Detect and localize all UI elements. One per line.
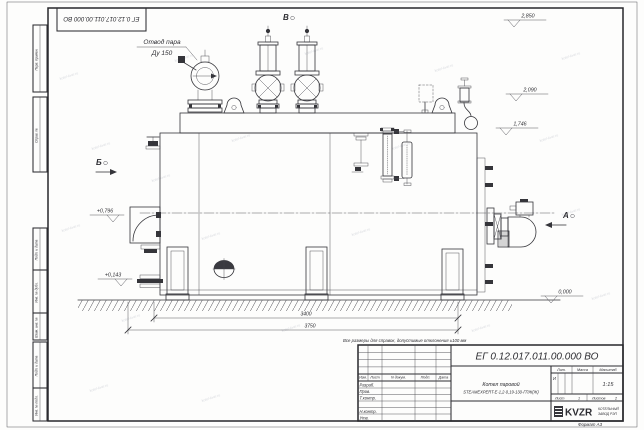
watermark-layer: kotel-kvzr.ru kotel-kvzr.ru kotel-kvzr.r… xyxy=(59,46,611,403)
org-name-line1: КОТЕЛЬНЫЙ xyxy=(598,407,619,411)
reference-note: Все размеры для справок, допустимые откл… xyxy=(343,338,466,343)
elevation-value: 2,090 xyxy=(522,88,536,94)
elevation-value: 1,746 xyxy=(513,122,526,128)
sheet-frame xyxy=(7,2,637,427)
watermark-text: kotel-kvzr.ru xyxy=(121,313,141,323)
drum-front-valve xyxy=(352,133,368,172)
dimension-value: 3750 xyxy=(304,324,315,330)
elevation-value: +0,796 xyxy=(97,209,113,215)
drawing-canvas: kotel-kvzr.ru kotel-kvzr.ru kotel-kvzr.r… xyxy=(0,0,644,430)
format-label: Формат А3 xyxy=(578,422,603,427)
corner-stamp: ЕГ 0.12.017.011.00.000 ВО xyxy=(57,8,146,31)
title-block: Все размеры для справок, допустимые откл… xyxy=(343,338,623,427)
watermark-text: kotel-kvzr.ru xyxy=(89,383,109,393)
sheets-value: 2 xyxy=(614,396,617,400)
watermark-text: kotel-kvzr.ru xyxy=(201,393,221,403)
view-label-v: В xyxy=(283,13,289,22)
col-izm: Изм. xyxy=(359,376,367,380)
watermark-text: kotel-kvzr.ru xyxy=(561,51,581,61)
manhole xyxy=(213,259,235,280)
watermark-text: kotel-kvzr.ru xyxy=(471,323,491,333)
steam-outlet-label-line2: Ду 150 xyxy=(151,50,173,57)
margin-label-podp-data-1: Подп. и дата xyxy=(35,240,39,261)
view-arrow-b-left: Б xyxy=(96,158,117,175)
safety-valve-1 xyxy=(252,26,284,113)
support xyxy=(305,247,328,300)
row-prov: Пров. xyxy=(360,389,371,394)
col-data: Дата xyxy=(438,376,449,380)
watermark-text: kotel-kvzr.ru xyxy=(231,133,251,143)
front-box xyxy=(130,207,161,243)
view-arrow-b-top: В xyxy=(283,13,294,22)
watermark-text: kotel-kvzr.ru xyxy=(539,133,559,143)
elevation-value: +0,143 xyxy=(105,273,121,279)
lit-value: И xyxy=(553,376,556,381)
scale-label: Масштаб xyxy=(599,368,617,372)
level-gauge-glass xyxy=(402,130,412,186)
col-list: Лист xyxy=(369,376,380,380)
elevation-0000: 0,000 xyxy=(541,290,583,304)
saddle-supports xyxy=(166,247,464,300)
drawing-designation: ЕГ 0.12.017.011.00.000 ВО xyxy=(476,352,599,363)
watermark-text: kotel-kvzr.ru xyxy=(61,223,81,233)
elevation-1746: 1,746 xyxy=(496,122,538,136)
margin-label-perv-primen: Перв. примен. xyxy=(35,48,39,70)
safety-valve-2 xyxy=(291,26,323,113)
row-razrab: Разраб. xyxy=(360,383,375,388)
lit-label: Лит. xyxy=(556,368,566,372)
drawing-sheet: kotel-kvzr.ru kotel-kvzr.ru kotel-kvzr.r… xyxy=(0,0,644,430)
watermark-text: kotel-kvzr.ru xyxy=(391,141,411,151)
ground-hatch xyxy=(78,300,560,311)
rear-flange xyxy=(477,158,485,292)
burner-assembly xyxy=(487,199,536,247)
watermark-text: kotel-kvzr.ru xyxy=(201,231,221,241)
gauge-siphon xyxy=(458,78,478,130)
dimension-value: 3400 xyxy=(300,312,311,318)
row-utv: Утв. xyxy=(360,415,369,420)
col-podp: Подп. xyxy=(421,376,431,380)
scale-value: 1:15 xyxy=(603,382,615,388)
elevation-2850: 2,850 xyxy=(504,14,546,28)
org-logo-text: KVZR xyxy=(565,408,593,419)
margin-stamps: Перв. примен. Справ. № Подп. и дата Инв.… xyxy=(33,25,47,421)
elevation-2090: 2,090 xyxy=(506,88,548,102)
margin-label-inv-podl: Инв. № подл. xyxy=(35,395,39,416)
margin-label-sprav-no: Справ. № xyxy=(35,128,39,143)
top-platform xyxy=(180,113,455,133)
view-label-a: А xyxy=(562,211,569,220)
steam-outlet-valve xyxy=(178,50,222,112)
margin-label-vzam-inv: Взам. инв. № xyxy=(35,317,39,338)
sheets-label: Листов xyxy=(591,396,606,400)
steam-outlet-label-line1: Отвод пара xyxy=(143,38,181,46)
corner-stamp-number: ЕГ 0.12.017.011.00.000 ВО xyxy=(63,15,139,22)
org-logo: KVZR КОТЕЛЬНЫЙ ЗАВОД РЭП xyxy=(554,406,619,419)
watermark-text: kotel-kvzr.ru xyxy=(281,323,301,333)
paper-border xyxy=(7,2,637,427)
watermark-text: kotel-kvzr.ru xyxy=(59,71,79,81)
dimension-3400: 3400 xyxy=(151,312,461,322)
support xyxy=(166,247,189,300)
watermark-text: kotel-kvzr.ru xyxy=(351,227,371,237)
elevation-0143: +0,143 xyxy=(98,273,132,287)
watermark-text: kotel-kvzr.ru xyxy=(591,291,611,301)
watermark-text: kotel-kvzr.ru xyxy=(151,173,171,183)
level-gauge-column xyxy=(380,128,404,182)
product-name-line2: STEAMEXPERT-Е-1,2-0,19-130-ГПЖ(Ж) xyxy=(463,390,539,395)
sheet-value: 1 xyxy=(578,396,580,400)
product-name-line1: Котел паровой xyxy=(482,381,519,388)
margin-label-podp-data-2: Подп. и дата xyxy=(35,356,39,377)
reserved-fitting xyxy=(419,85,433,113)
row-tkontr: Т.контр. xyxy=(360,396,377,401)
sheet-label: Лист xyxy=(554,396,565,400)
support xyxy=(441,249,464,300)
elevation-value: 2,850 xyxy=(520,14,534,20)
elevation-value: 0,000 xyxy=(558,290,571,296)
watermark-text: kotel-kvzr.ru xyxy=(91,141,111,151)
boiler-drawing: Отвод пара Ду 150 xyxy=(78,13,583,334)
view-label-b: Б xyxy=(96,158,102,167)
col-doc: N докум. xyxy=(391,376,406,380)
margin-label-inv-dubl: Инв. № дубл. xyxy=(35,282,39,302)
boiler-shell xyxy=(160,113,493,295)
watermark-text: kotel-kvzr.ru xyxy=(434,63,454,73)
massa-label: Масса xyxy=(577,368,588,372)
org-name-line2: ЗАВОД РЭП xyxy=(598,412,618,416)
elevation-0796: +0,796 xyxy=(90,209,124,223)
row-nkontr: Н.контр. xyxy=(360,409,377,414)
